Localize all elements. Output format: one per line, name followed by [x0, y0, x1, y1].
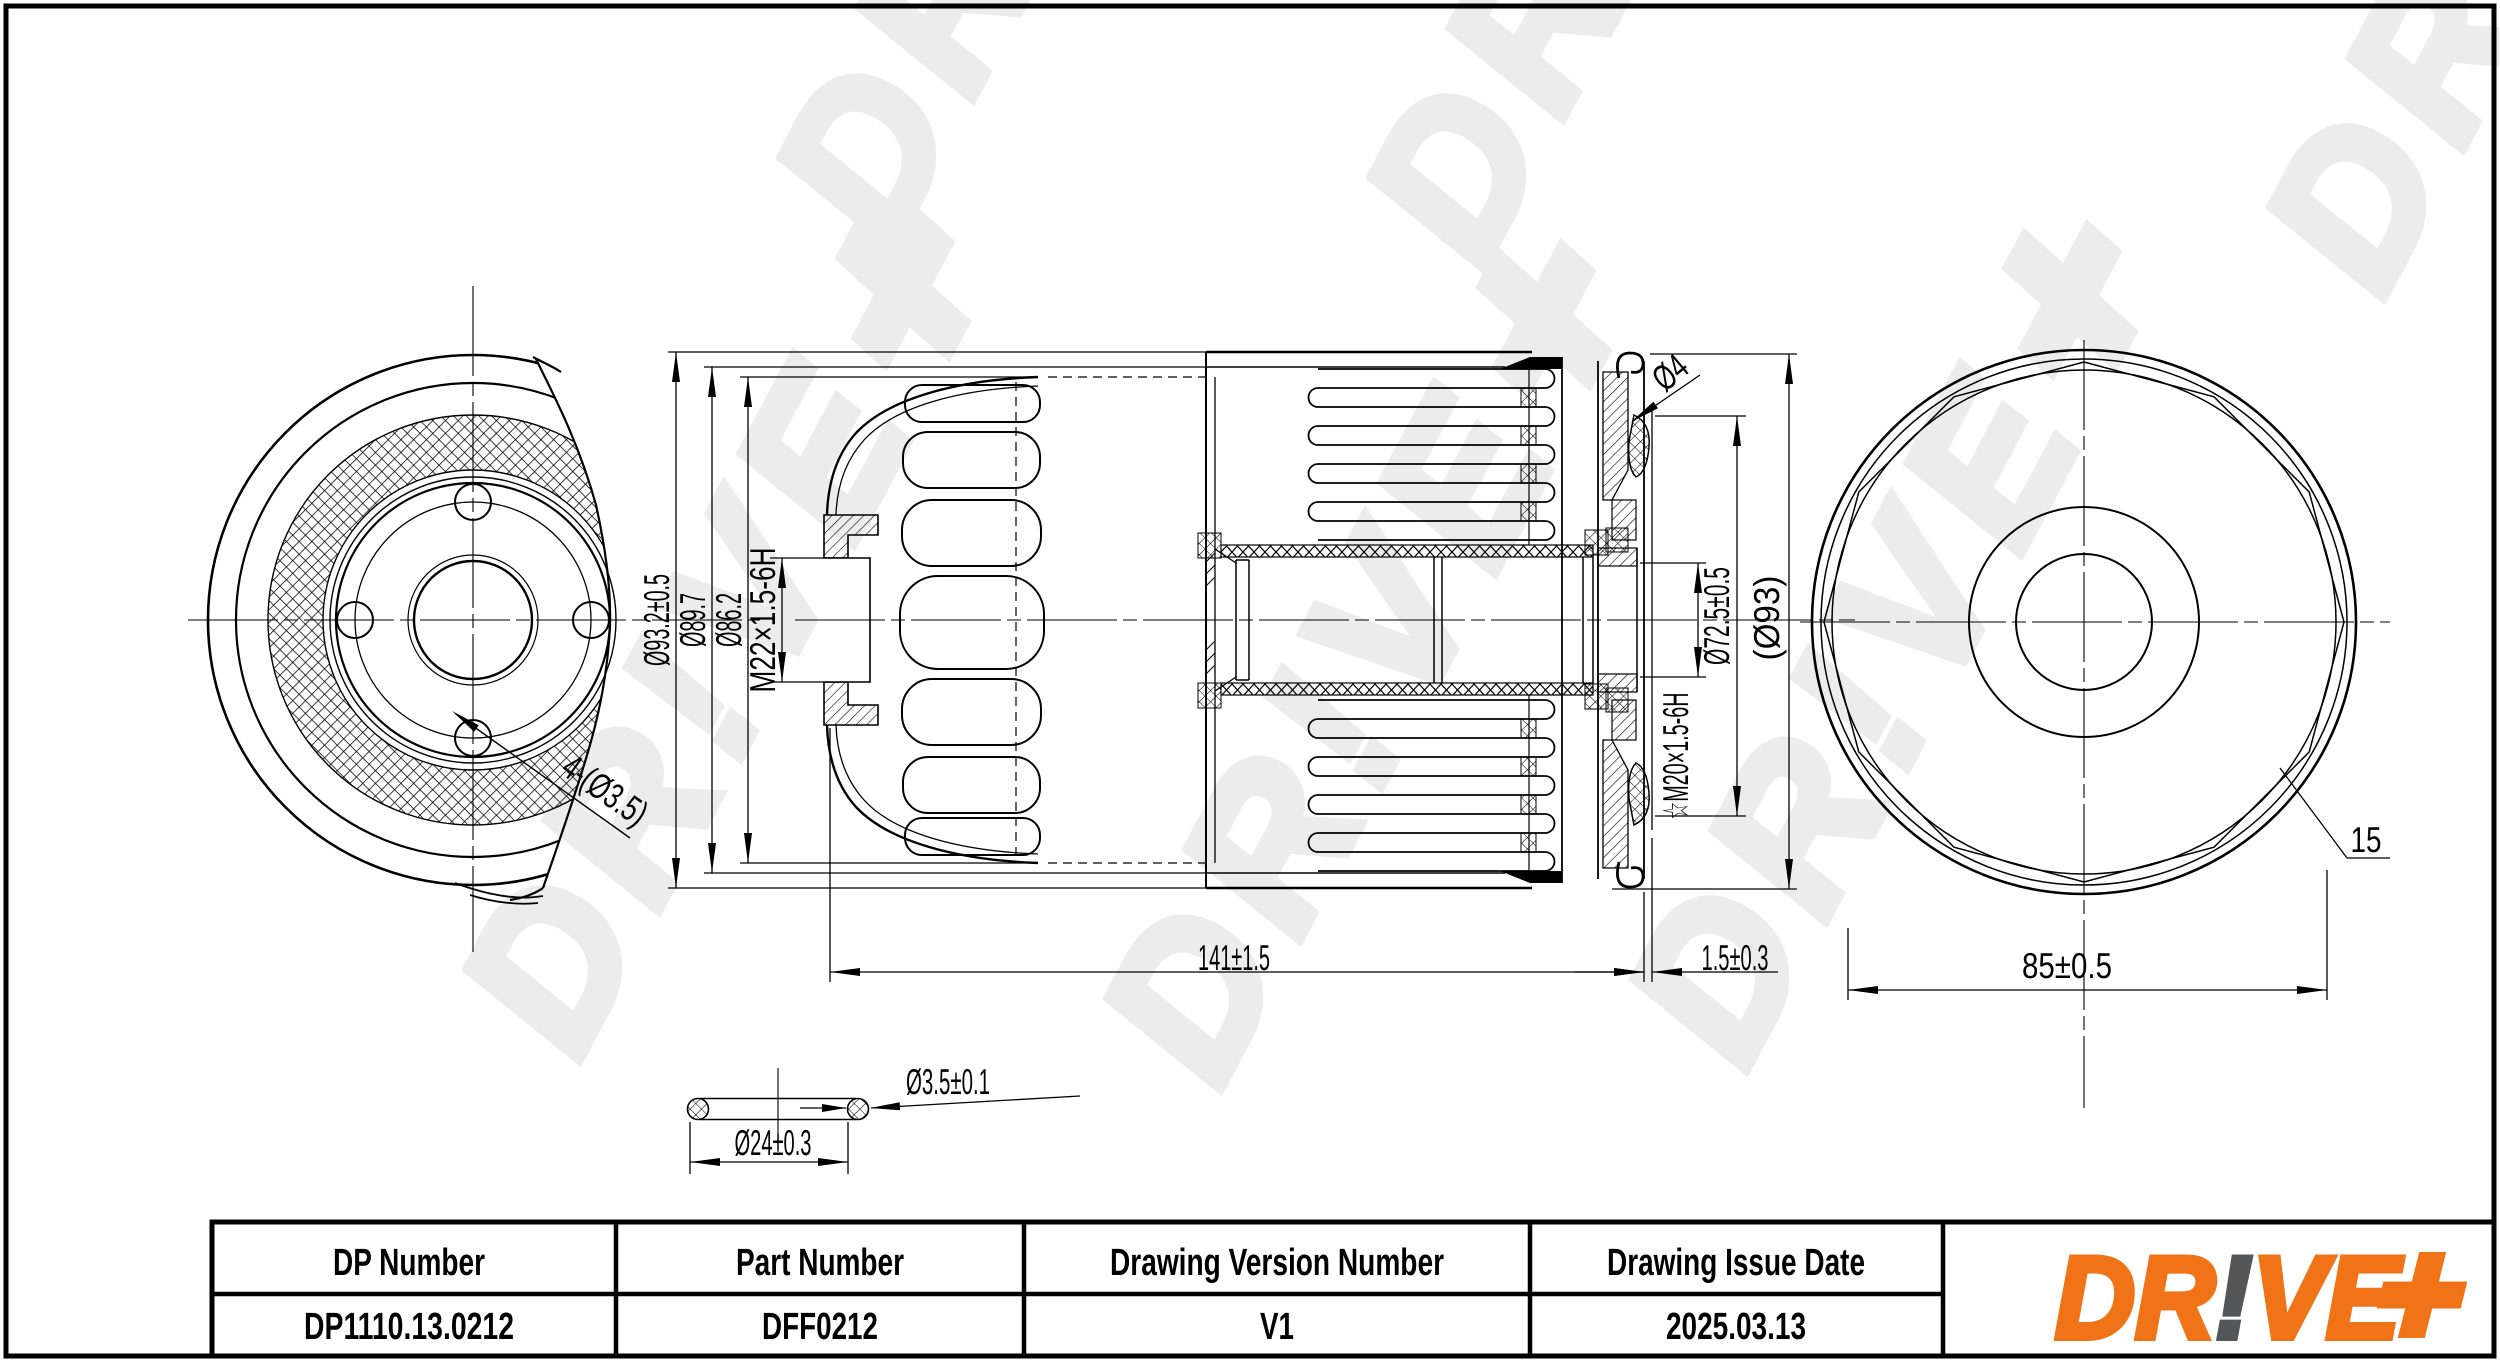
svg-text:V1: V1 [1260, 1306, 1294, 1348]
svg-text:141±1.5: 141±1.5 [1198, 937, 1270, 978]
svg-text:Part Number: Part Number [736, 1242, 904, 1284]
svg-text:DP1110.13.0212: DP1110.13.0212 [304, 1306, 514, 1348]
svg-text:☆M20×1.5-6H: ☆M20×1.5-6H [1655, 693, 1696, 820]
svg-text:Ø24±0.3: Ø24±0.3 [735, 1122, 812, 1163]
svg-text:Ø3.5±0.1: Ø3.5±0.1 [906, 1061, 990, 1102]
svg-text:Ø72.5±0.5: Ø72.5±0.5 [1696, 567, 1737, 665]
svg-text:Ø93.2±0.5: Ø93.2±0.5 [636, 574, 677, 666]
svg-text:DP Number: DP Number [333, 1242, 485, 1284]
svg-text:(Ø93): (Ø93) [1746, 576, 1787, 661]
svg-text:DFF0212: DFF0212 [762, 1306, 878, 1348]
svg-text:Drawing Version Number: Drawing Version Number [1110, 1242, 1444, 1284]
svg-text:85±0.5: 85±0.5 [2022, 945, 2112, 986]
svg-text:15: 15 [2351, 819, 2382, 860]
svg-text:1.5±0.3: 1.5±0.3 [1702, 937, 1769, 978]
svg-text:2025.03.13: 2025.03.13 [1666, 1306, 1806, 1348]
svg-text:M22×1.5-6H: M22×1.5-6H [742, 548, 783, 693]
svg-text:Ø89.7: Ø89.7 [672, 593, 713, 647]
svg-text:Drawing Issue Date: Drawing Issue Date [1607, 1242, 1865, 1284]
